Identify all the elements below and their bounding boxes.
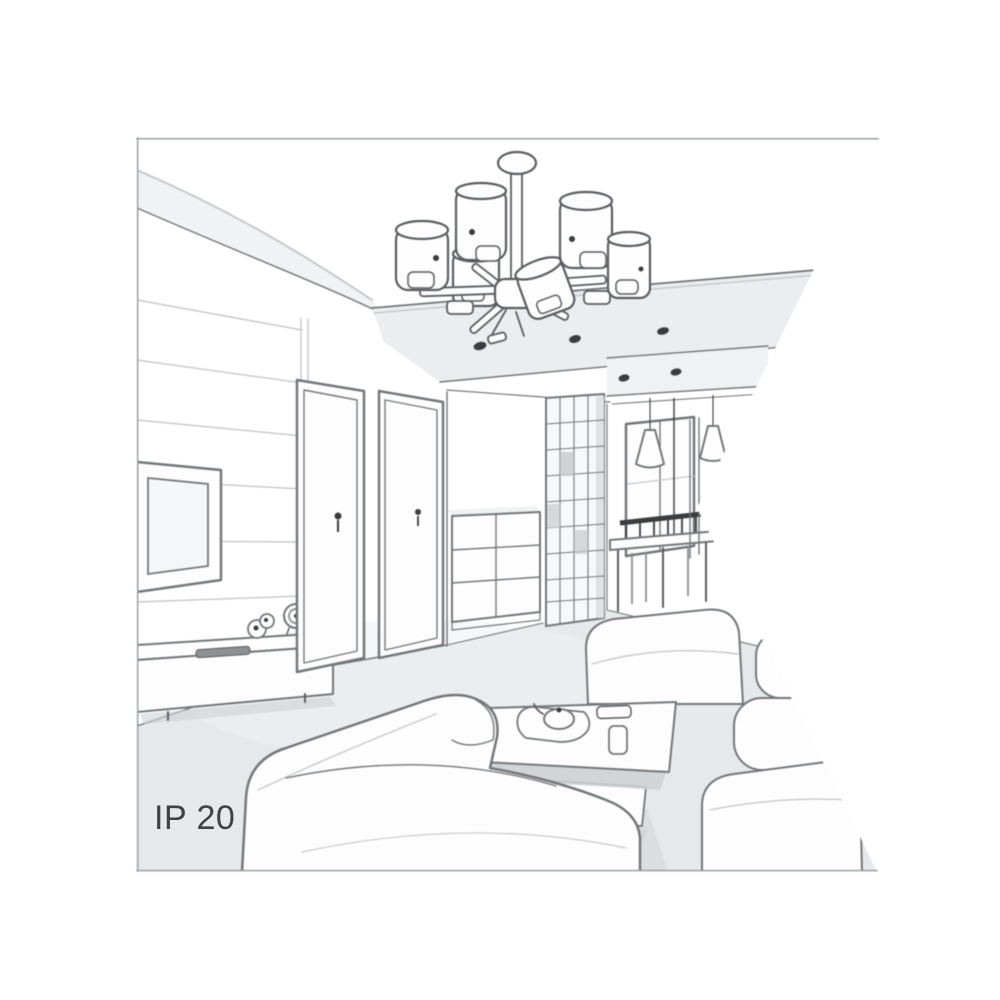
cup [609, 726, 627, 754]
chest-of-drawers [448, 506, 540, 630]
ottoman [586, 609, 743, 704]
door-2 [379, 391, 443, 658]
door-1 [297, 380, 364, 672]
door-2-handle [415, 509, 421, 515]
chandelier-canopy [498, 152, 536, 174]
room-sketch [0, 0, 1000, 1000]
product-context-illustration: IP 20 [0, 0, 1000, 1000]
wardrobe-grid [546, 394, 604, 626]
chandelier-shade-mid-left [456, 183, 506, 261]
chandelier-shade-right [608, 232, 650, 298]
dining-nook [607, 346, 768, 611]
chandelier-shade-mid-right [560, 192, 612, 268]
door-1-handle [335, 513, 342, 520]
chandelier-shade-left [396, 221, 448, 290]
ip-rating-label: IP 20 [154, 799, 235, 838]
tv [137, 462, 221, 592]
